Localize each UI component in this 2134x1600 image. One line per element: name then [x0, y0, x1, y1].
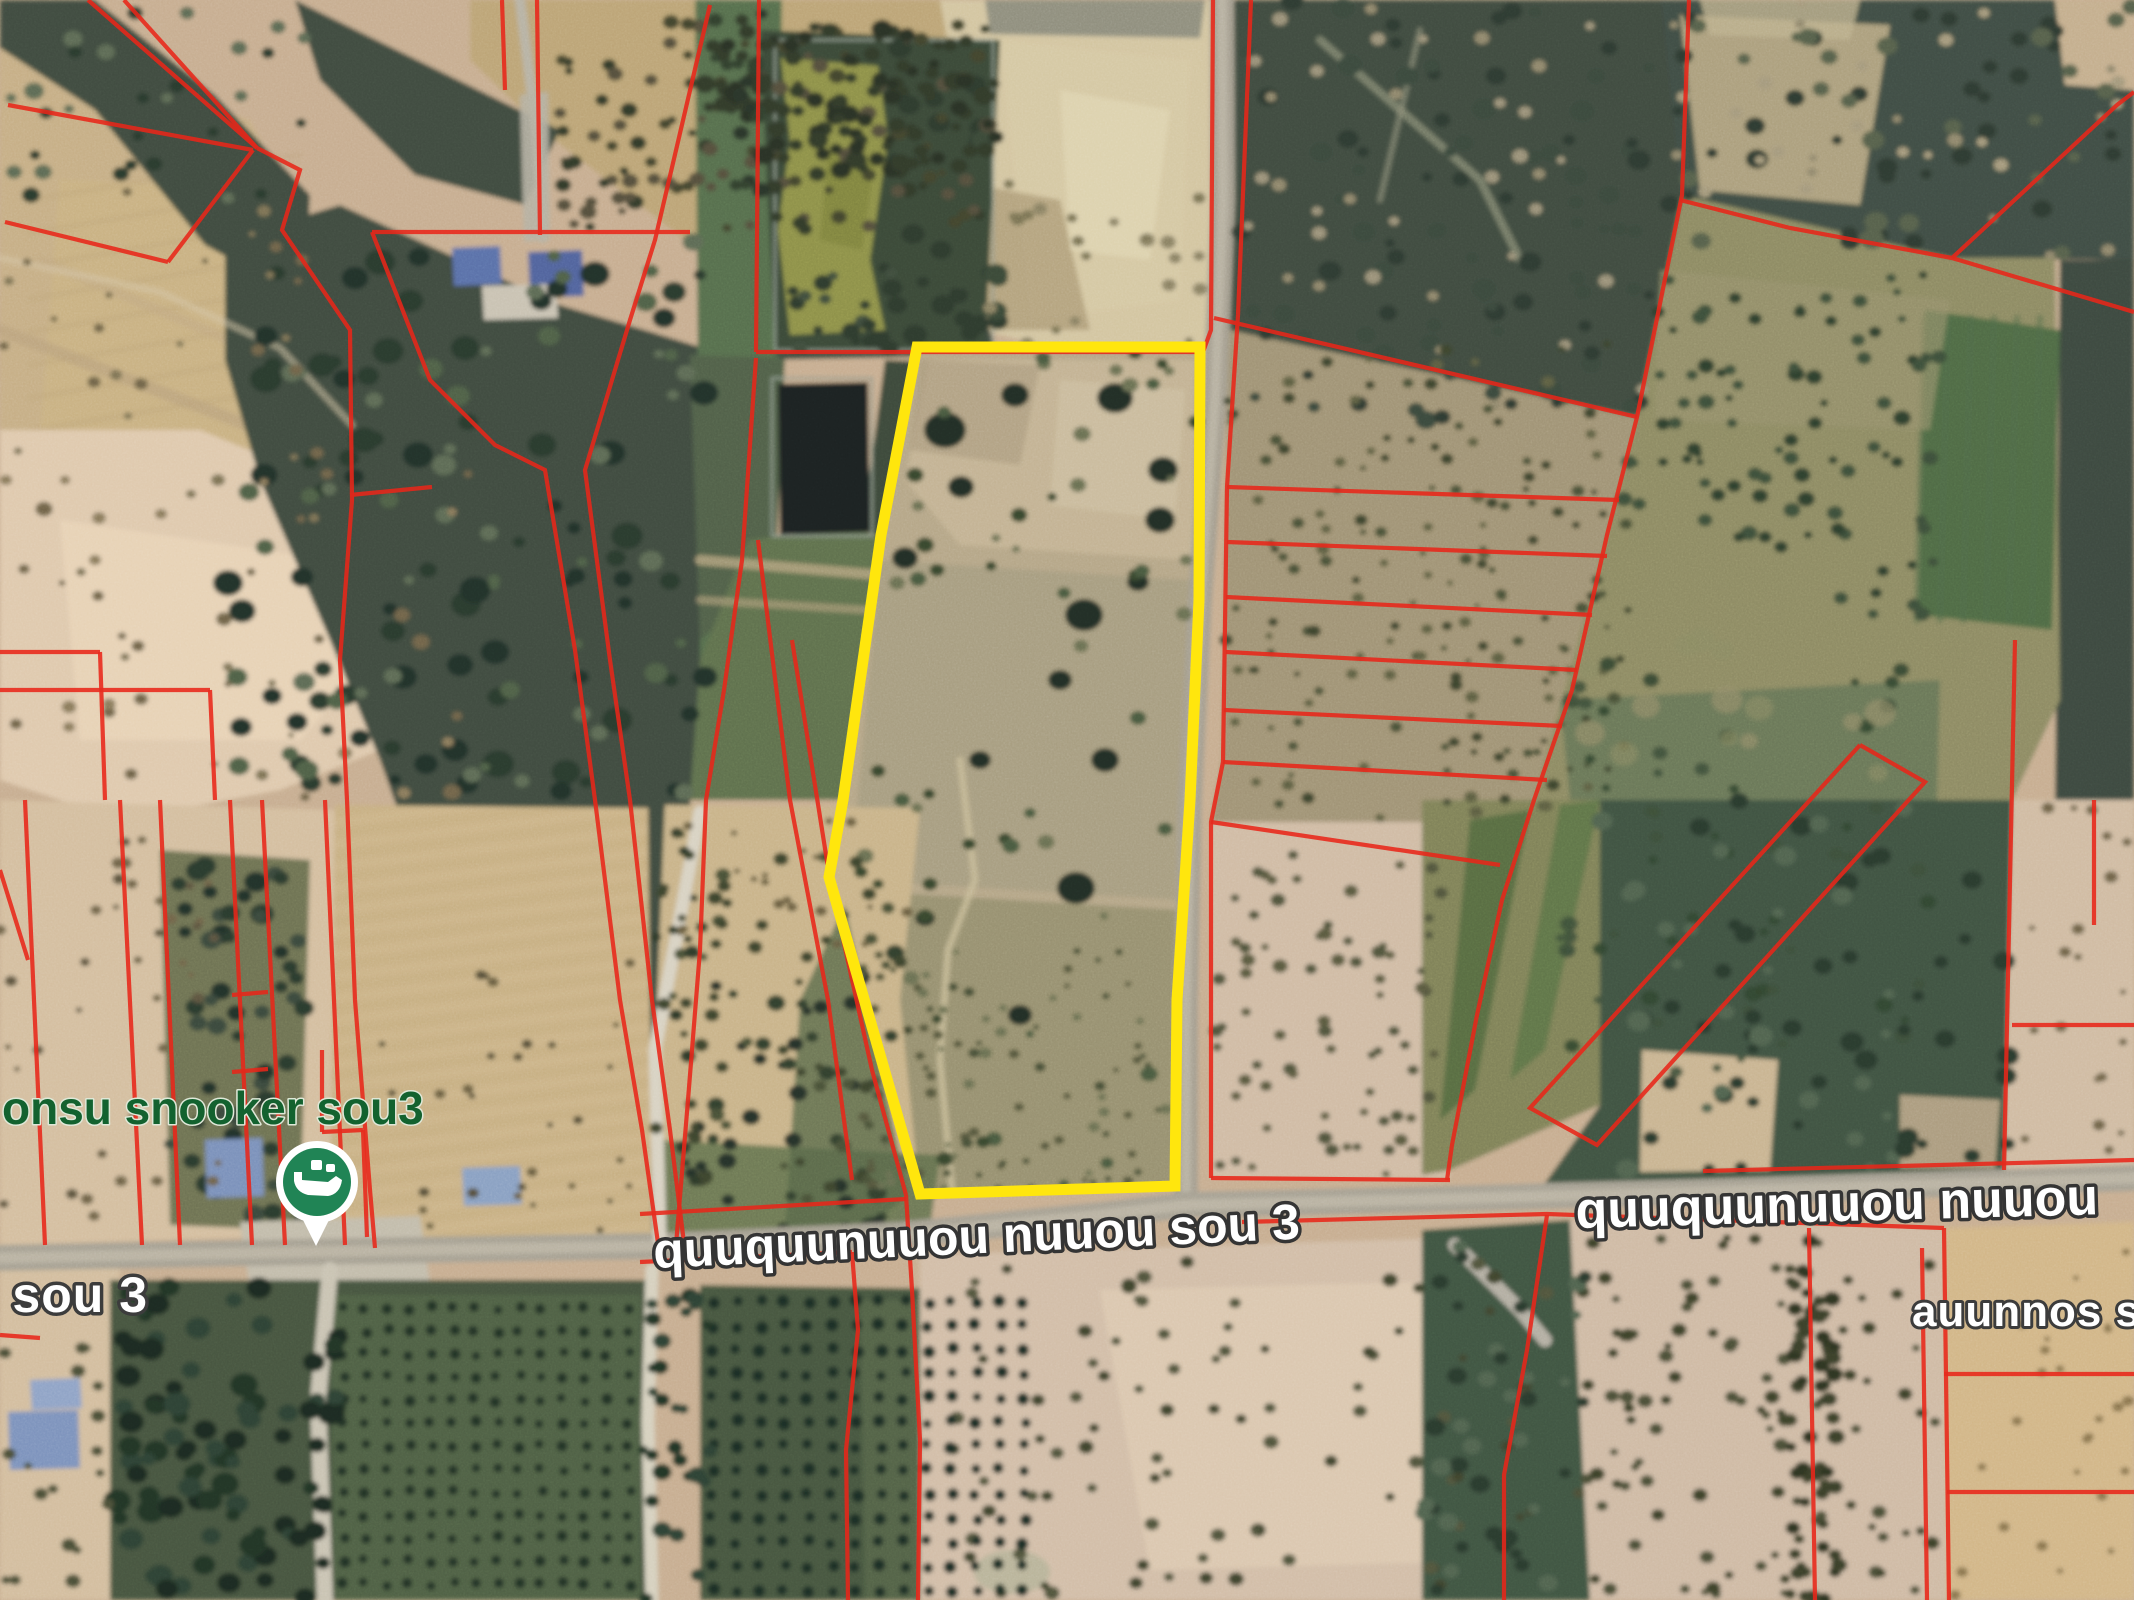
svg-text:u sou 3: u sou 3 — [0, 1267, 148, 1323]
svg-text:auunnos s: auunnos s — [1912, 1287, 2134, 1336]
svg-text:onsu snooker sou3: onsu snooker sou3 — [2, 1082, 424, 1134]
